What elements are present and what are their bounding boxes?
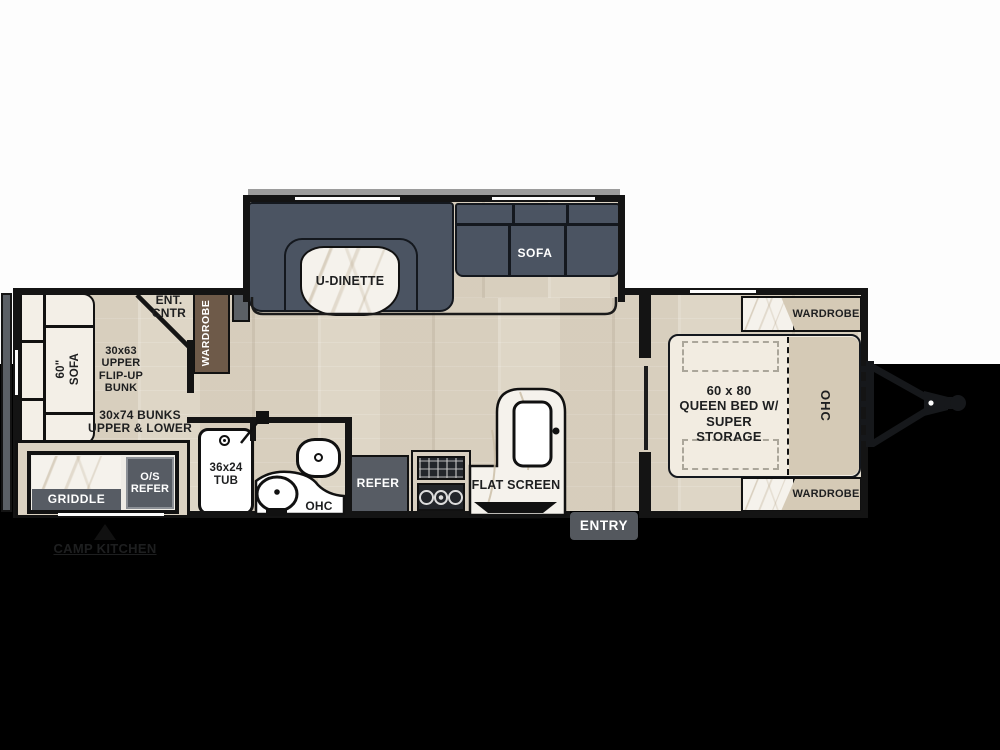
slide-sofa bbox=[455, 203, 620, 277]
window-slit-bedroom bbox=[690, 290, 756, 293]
entry-badge: ENTRY bbox=[570, 512, 638, 540]
range-burners bbox=[417, 483, 465, 511]
hitch-neck bbox=[944, 397, 957, 409]
slide-sofa-label: SOFA bbox=[500, 247, 570, 260]
hitch-coupler-hole bbox=[928, 400, 933, 405]
burner-icon bbox=[448, 490, 463, 505]
slide-sofa-div2 bbox=[566, 204, 569, 224]
range-grill bbox=[417, 456, 465, 480]
bedroom-partition-top bbox=[639, 292, 651, 358]
rear-sofa-seat-div1 bbox=[46, 325, 93, 328]
camp-kitchen-griddle: GRIDDLE bbox=[32, 489, 121, 510]
slide-sofa-div1 bbox=[512, 204, 515, 224]
rear-sofa-back-div2 bbox=[22, 398, 43, 401]
window-slit-slideout-2 bbox=[492, 197, 595, 200]
u-dinette-table: U-DINETTE bbox=[300, 246, 400, 316]
wardrobe-bottom-marble-corner bbox=[743, 479, 795, 510]
camp-kitchen-caption: CAMP KITCHEN bbox=[38, 542, 172, 557]
rear-sofa-back bbox=[20, 293, 45, 445]
refer-label: REFER bbox=[357, 477, 400, 490]
flip-bunk-label: 30x63 UPPER FLIP-UP BUNK bbox=[90, 345, 152, 394]
tub-label: 36x24 TUB bbox=[200, 462, 252, 488]
bath-wall-top-b bbox=[268, 417, 352, 423]
burner-icon bbox=[434, 490, 449, 505]
hitch-tube-upper bbox=[874, 364, 931, 404]
slideout-wall-right bbox=[618, 195, 625, 302]
bed-pillow-top bbox=[682, 341, 779, 372]
front-wardrobe-top-label: WARDROBE bbox=[791, 308, 861, 320]
griddle-label: GRIDDLE bbox=[48, 493, 106, 506]
floorplan-stage: U-DINETTE SOFA 60" SOFA 30x63 UPPER FLIP… bbox=[0, 0, 1000, 750]
camp-kitchen-arrow bbox=[94, 524, 116, 540]
tub-faucet-dot bbox=[223, 439, 226, 442]
flat-screen-label: FLAT SCREEN bbox=[468, 478, 564, 492]
bedroom-pocket-door bbox=[644, 366, 648, 450]
wall-front-right bbox=[861, 288, 868, 518]
rear-slide-exterior bbox=[1, 293, 12, 512]
front-wardrobe-bottom-label: WARDROBE bbox=[791, 488, 861, 500]
toilet-flush bbox=[314, 453, 323, 462]
window-slit-rear bbox=[15, 350, 18, 395]
camp-kitchen-counter bbox=[32, 456, 121, 489]
u-dinette-label: U-DINETTE bbox=[316, 274, 384, 288]
rear-sofa-label: 60" SOFA bbox=[55, 331, 83, 407]
rear-wardrobe-label: WARDROBE bbox=[201, 294, 221, 372]
wardrobe-top-marble-corner bbox=[743, 298, 795, 330]
slide-sofa-back-seam bbox=[457, 223, 618, 226]
bath-wall-top-a bbox=[187, 417, 256, 423]
bunks-label: 30x74 BUNKS UPPER & LOWER bbox=[85, 409, 195, 436]
hitch-tube-lower bbox=[874, 404, 931, 447]
hitch-ball bbox=[950, 395, 966, 411]
refrigerator: REFER bbox=[347, 455, 409, 513]
hitch-coupler bbox=[924, 391, 948, 416]
bed-storage-dash-line bbox=[787, 337, 789, 475]
bedroom-partition-bottom bbox=[639, 452, 651, 518]
bath-wall-divider bbox=[250, 417, 256, 441]
bath-wall-right bbox=[345, 417, 352, 518]
burner-icon bbox=[419, 490, 434, 505]
front-wardrobe-top: WARDROBE bbox=[741, 296, 862, 332]
os-refer-label: O/S REFER bbox=[131, 471, 169, 496]
window-slit-campkitchen bbox=[58, 513, 164, 516]
rear-sofa-back-div1 bbox=[22, 340, 43, 343]
os-refer: O/S REFER bbox=[126, 457, 174, 509]
bed-label: 60 x 80 QUEEN BED W/ SUPER STORAGE bbox=[672, 383, 786, 444]
front-wardrobe-bottom: WARDROBE bbox=[741, 477, 862, 512]
ent-cntr-label: ENT. CNTR bbox=[146, 294, 192, 321]
wardrobe-side-wall bbox=[187, 340, 194, 393]
window-slit-slideout-1 bbox=[295, 197, 400, 200]
slideout-wall-left bbox=[243, 195, 250, 302]
wall-bottom-right bbox=[640, 511, 868, 518]
entry-label: ENTRY bbox=[580, 518, 628, 533]
bed-ohc-label: OHC bbox=[816, 376, 832, 436]
bath-ohc-label: OHC bbox=[296, 500, 342, 513]
